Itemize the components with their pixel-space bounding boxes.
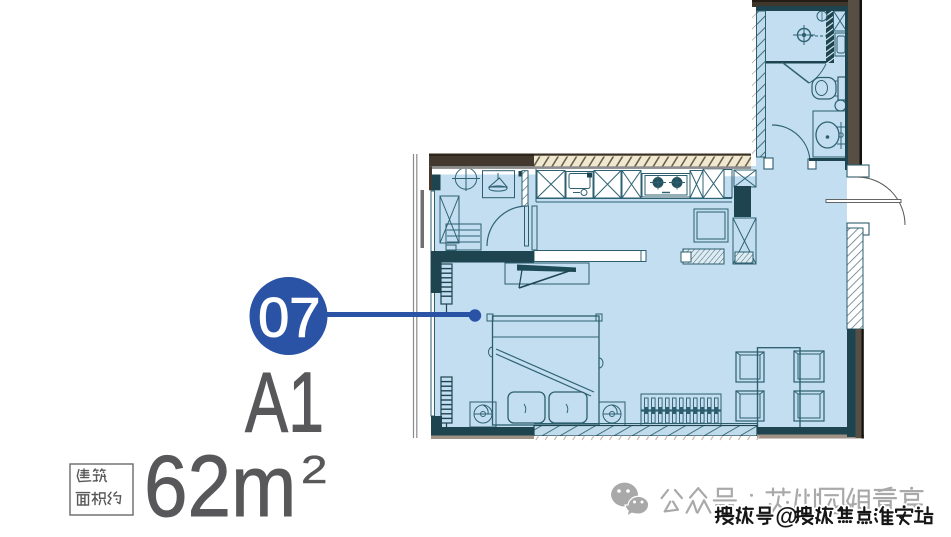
svg-text:@: @ (775, 503, 797, 529)
svg-text:A1: A1 (245, 355, 324, 450)
svg-text:07: 07 (258, 286, 320, 349)
svg-text:2: 2 (301, 449, 327, 492)
svg-text:62m: 62m (144, 437, 296, 535)
